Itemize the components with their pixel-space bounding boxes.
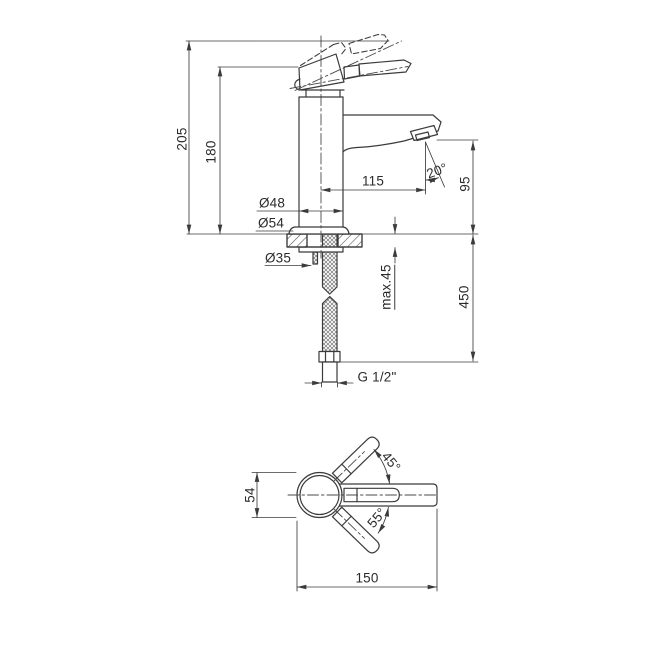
dim-base-diameter-label: Ø54 xyxy=(258,216,284,230)
faucet-body xyxy=(299,90,344,227)
dim-total-height-label: 205 xyxy=(175,127,189,150)
g-half-thread xyxy=(323,362,338,382)
top-view xyxy=(252,435,437,591)
front-view xyxy=(186,35,478,388)
dim-body-width-label: 54 xyxy=(243,487,257,502)
dim-overall-length-label: 150 xyxy=(355,571,378,585)
dim-hose-length-label: 450 xyxy=(457,285,471,308)
drawing-linework xyxy=(0,0,650,650)
spout xyxy=(343,115,441,152)
dim-shank-diameter-label: Ø35 xyxy=(265,251,291,265)
mounting-stud xyxy=(313,252,318,264)
dim-outlet-height-label: 95 xyxy=(458,176,472,191)
dim-max-deck-thickness-label: max.45 xyxy=(379,264,395,309)
dim-connection-thread-label: G 1/2" xyxy=(357,370,396,384)
handle-up-45 xyxy=(330,435,382,486)
handle-raised-position xyxy=(301,35,389,66)
technical-drawing-canvas: 205 180 Ø48 Ø54 Ø35 115 20° 95 450 max.4… xyxy=(0,0,650,650)
centerlines xyxy=(290,36,408,258)
base-flange xyxy=(289,227,349,234)
dim-body-diameter-label: Ø48 xyxy=(259,196,285,210)
dim-spout-reach-label: 115 xyxy=(362,174,384,188)
hose-connector xyxy=(319,352,340,383)
dim-body-height-label: 180 xyxy=(204,140,218,163)
